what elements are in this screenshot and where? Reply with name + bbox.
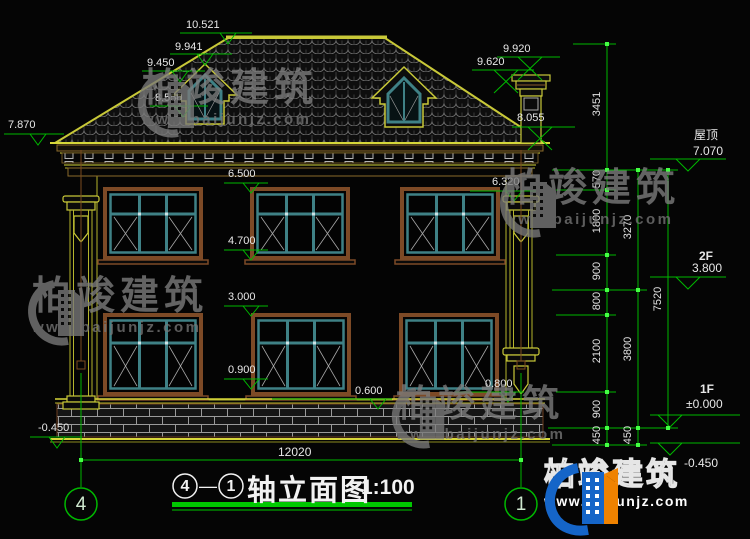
window-1f-right <box>401 315 497 394</box>
title-axis-to: 1 <box>227 478 236 496</box>
level-roof-label: 屋顶 <box>694 129 718 141</box>
dim-total-width: 12020 <box>278 446 311 458</box>
dim-3800: 3800 <box>622 314 634 384</box>
window-1f-middle <box>253 315 349 394</box>
axis-bubble-right: 1 <box>516 494 527 516</box>
elev-plinth-top: 0.600 <box>355 385 383 397</box>
brand-logo-icon <box>540 458 632 536</box>
elev-pilaster-base: 0.800 <box>485 378 513 390</box>
drawing-title: 轴立面图 <box>247 467 371 509</box>
hip-roof <box>50 37 550 143</box>
elev-eave-right: 8.055 <box>517 112 545 124</box>
elev-ground-left: -0.450 <box>38 422 69 434</box>
level-2f-value: 3.800 <box>692 262 722 274</box>
axis-bubble-left: 4 <box>76 494 87 516</box>
elev-2f-window-head: 6.500 <box>228 168 256 180</box>
drawing-scale: 1:100 <box>361 476 415 500</box>
elev-1f-window-sill: 0.900 <box>228 364 256 376</box>
brick-plinth <box>50 399 550 442</box>
window-2f-right <box>402 189 498 258</box>
elev-dormer-ridge: 9.941 <box>175 41 203 53</box>
cad-elevation-screenshot: 10.521 9.941 9.450 8.550 7.870 9.920 9.6… <box>0 0 750 539</box>
level-1f-value: ±0.000 <box>686 398 723 410</box>
dim-3451: 3451 <box>591 69 603 139</box>
elev-1f-window-head: 3.000 <box>228 291 256 303</box>
window-2f-middle <box>252 189 348 258</box>
dentil-band <box>62 153 538 163</box>
window-1f-left <box>105 315 201 394</box>
elev-eave-left: 7.870 <box>8 119 36 131</box>
title-separator: — <box>199 476 217 497</box>
dim-7520: 7520 <box>652 264 664 334</box>
elev-chimney-cap: 9.620 <box>477 56 505 68</box>
cornice <box>57 145 543 176</box>
brand-logo: 柏竣建筑 www.baijunjz.com <box>540 458 689 509</box>
elev-2f-window-sill: 4.700 <box>228 235 256 247</box>
elev-dormer-eave: 9.450 <box>147 57 175 69</box>
elev-ridge: 10.521 <box>186 19 220 31</box>
elev-dormer-sill: 8.550 <box>155 92 183 104</box>
level-roof-value: 7.070 <box>693 145 723 157</box>
dim-3270: 3270 <box>622 192 634 262</box>
elev-chimney-top: 9.920 <box>503 43 531 55</box>
level-1f-label: 1F <box>700 383 714 395</box>
window-2f-left <box>105 189 201 258</box>
elev-2f-window-head-right: 6.320 <box>492 176 520 188</box>
title-axis-from: 4 <box>181 478 190 496</box>
level-ground-value: -0.450 <box>684 457 718 469</box>
